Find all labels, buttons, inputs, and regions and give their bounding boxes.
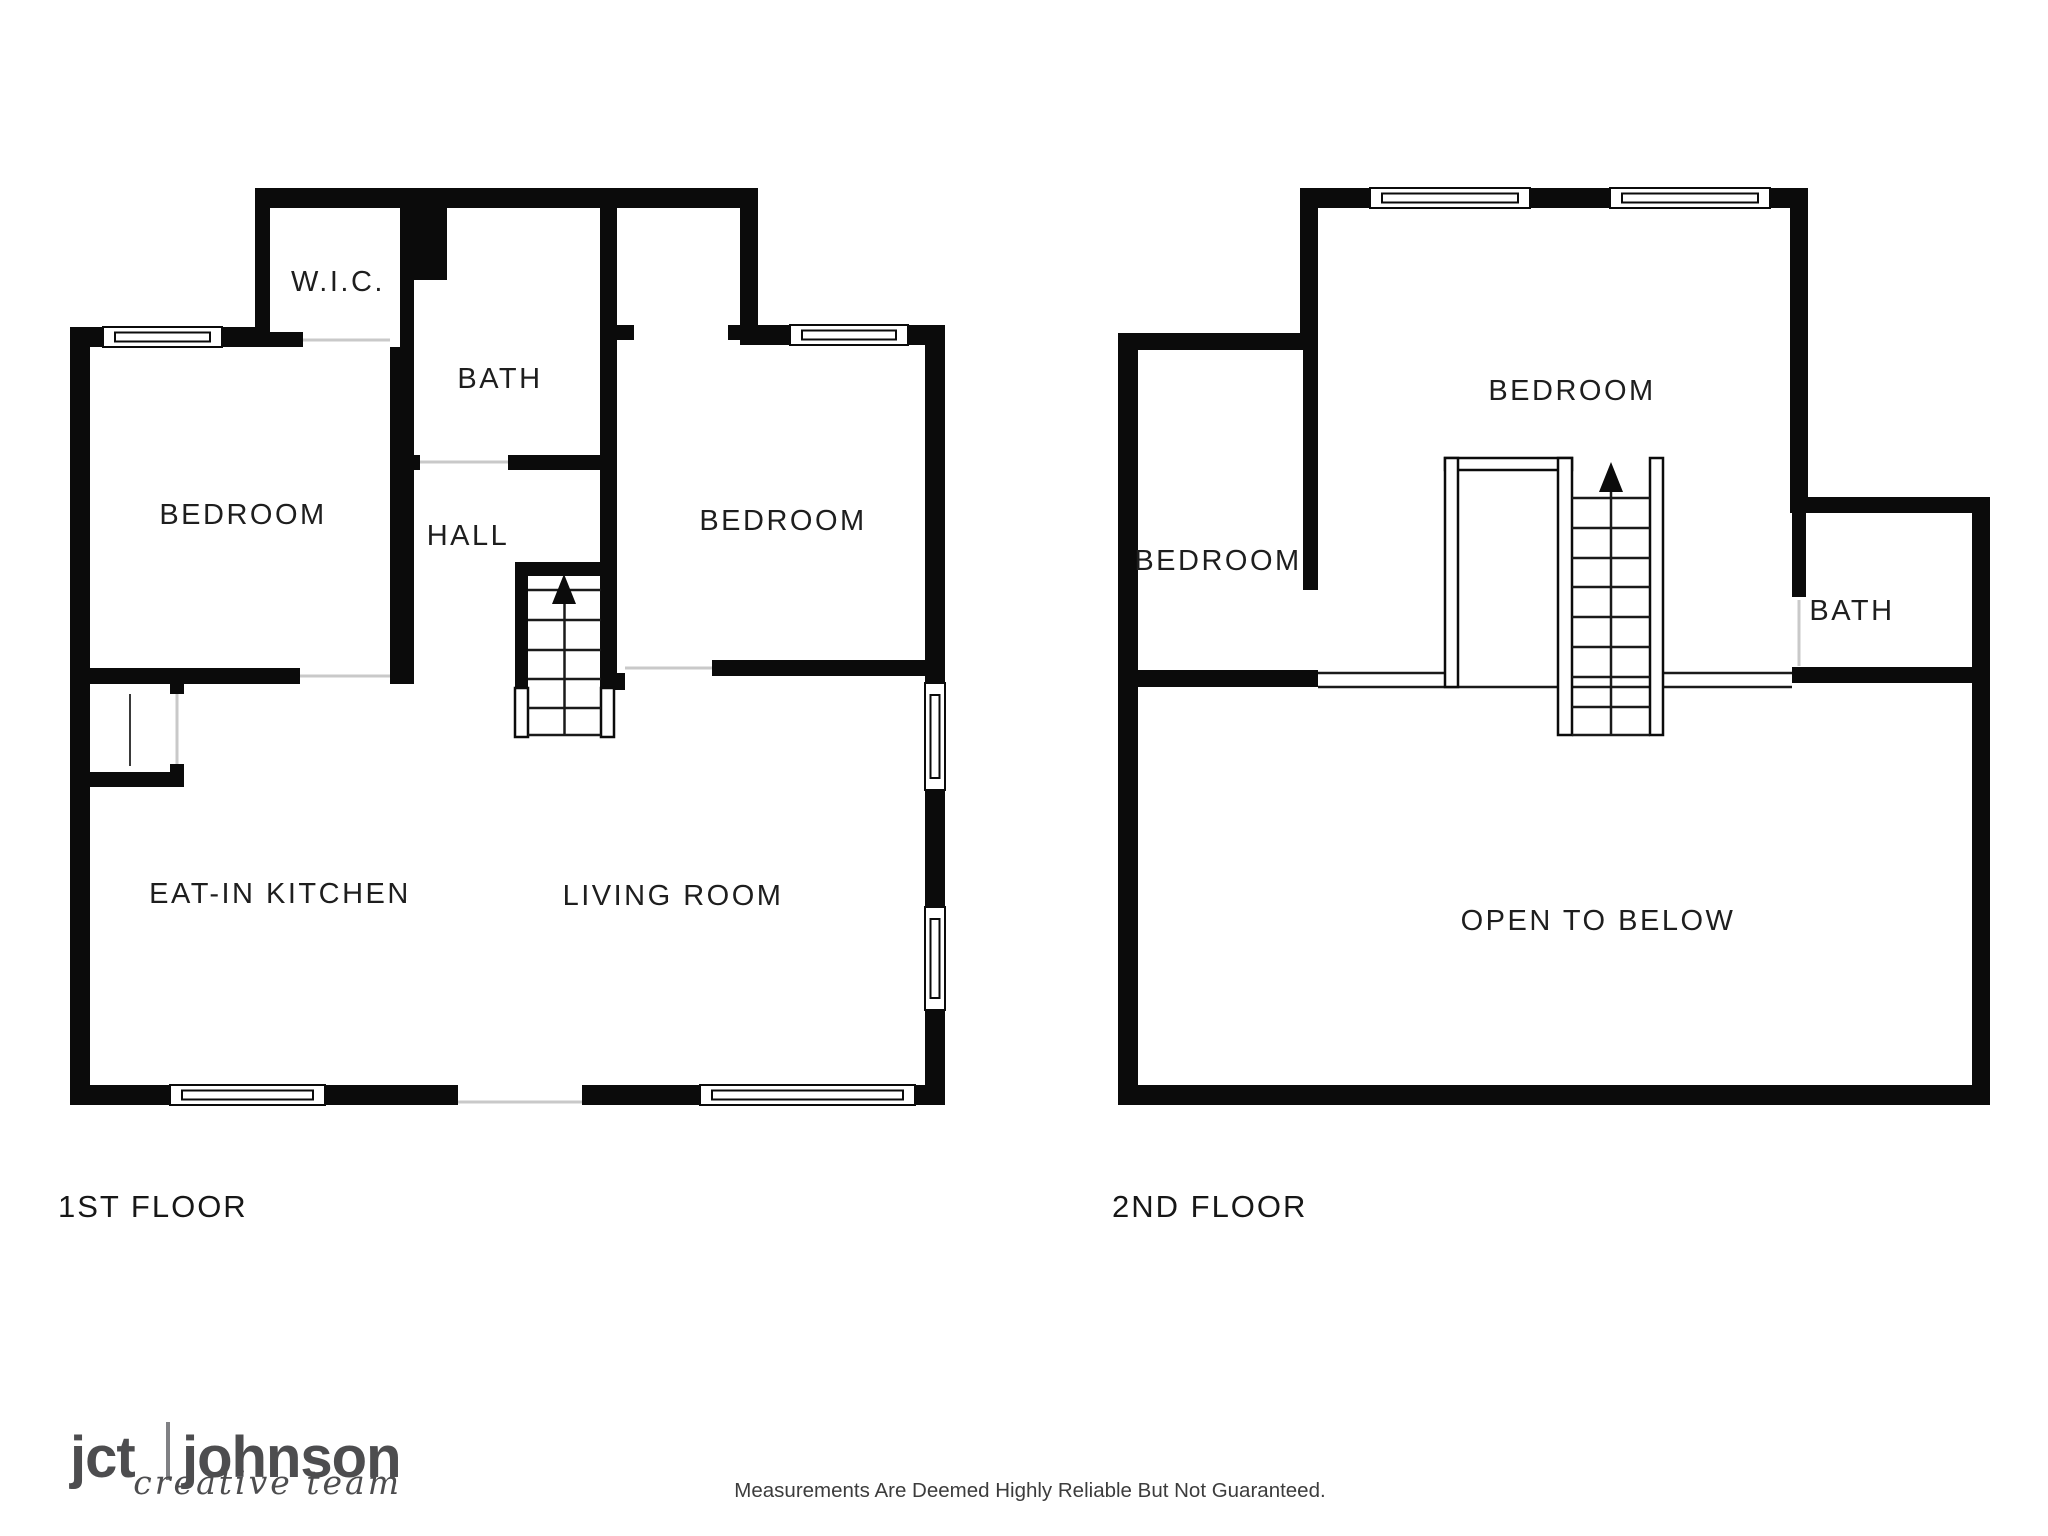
floor-plan-document: W.I.C. BATH HALL BEDROOM BEDROOM EAT-IN … (0, 0, 2048, 1536)
disclaimer-text: Measurements Are Deemed Highly Reliable … (734, 1479, 1325, 1502)
second-floor-plan: BEDROOM BEDROOM BATH OPEN TO BELOW 2ND F… (1112, 188, 1990, 1224)
room-label-bath-1: BATH (457, 363, 542, 395)
room-label-bath-2: BATH (1809, 595, 1894, 627)
window (790, 325, 908, 345)
first-floor-staircase (515, 574, 614, 737)
first-floor-plan: W.I.C. BATH HALL BEDROOM BEDROOM EAT-IN … (58, 188, 945, 1224)
second-floor-title: 2ND FLOOR (1112, 1189, 1307, 1224)
window (925, 683, 945, 790)
room-label-hall: HALL (427, 520, 510, 552)
room-label-bedroom-left-2: BEDROOM (1134, 545, 1301, 577)
room-label-open-to-below: OPEN TO BELOW (1461, 905, 1736, 937)
stair-treads (528, 582, 601, 735)
room-label-bedroom-left-1: BEDROOM (159, 499, 326, 531)
room-label-living: LIVING ROOM (563, 880, 784, 912)
window (103, 327, 222, 347)
jct-johnson-logo: jct johnson creative team (69, 1422, 402, 1502)
window (1610, 188, 1770, 208)
footer: jct johnson creative team Measurements A… (69, 1422, 1326, 1502)
second-floor-staircase (1445, 458, 1663, 735)
logo-tagline-text: creative team (133, 1463, 402, 1502)
room-label-bedroom-right-1: BEDROOM (699, 505, 866, 537)
window (925, 907, 945, 1010)
first-floor-title: 1ST FLOOR (58, 1189, 248, 1224)
stairs-up-arrow-icon (1599, 462, 1623, 492)
room-label-bedroom-top-2: BEDROOM (1488, 375, 1655, 407)
window (170, 1085, 325, 1105)
room-label-kitchen: EAT-IN KITCHEN (149, 878, 411, 910)
window (1370, 188, 1530, 208)
floor-plan-canvas: W.I.C. BATH HALL BEDROOM BEDROOM EAT-IN … (0, 0, 2048, 1536)
first-floor-door-openings (130, 340, 712, 1102)
room-label-wic: W.I.C. (291, 266, 385, 298)
second-floor-walls (1118, 188, 1990, 1105)
logo-jct-text: jct (69, 1425, 135, 1490)
stair-treads (1572, 472, 1650, 735)
window (700, 1085, 915, 1105)
